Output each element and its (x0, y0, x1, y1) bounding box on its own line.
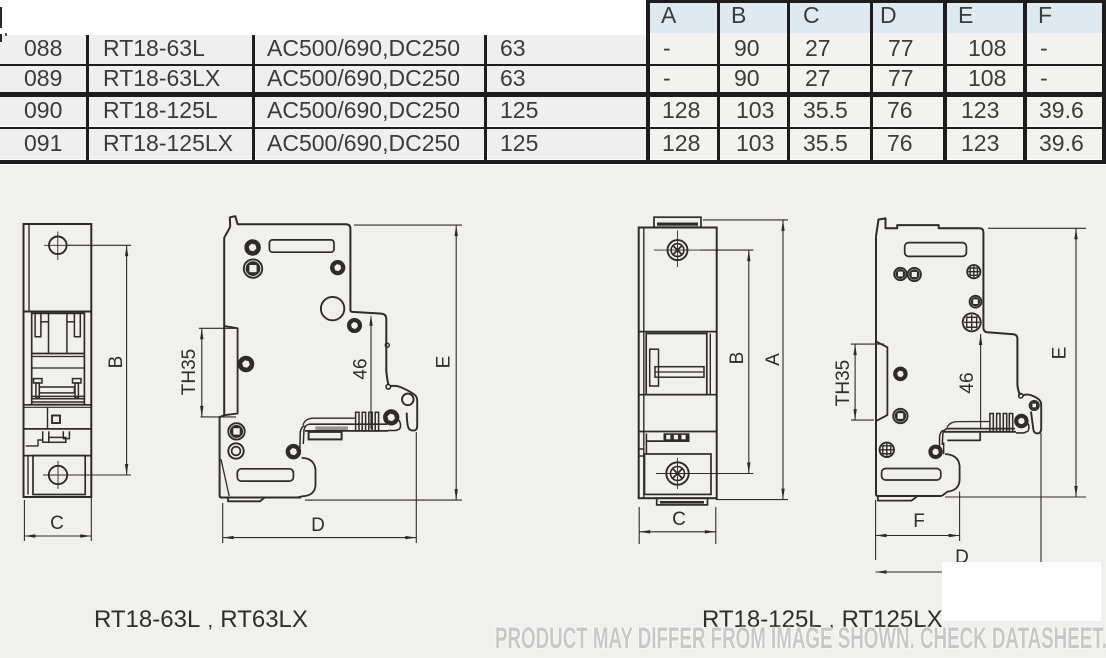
svg-text:F: F (913, 511, 925, 532)
svg-text:46: 46 (351, 358, 372, 379)
svg-text:B: B (106, 356, 127, 369)
svg-text:46: 46 (957, 372, 978, 393)
svg-text:E: E (1050, 347, 1071, 360)
svg-text:A: A (763, 353, 784, 366)
svg-text:C: C (672, 509, 686, 530)
svg-text:C: C (50, 513, 64, 534)
svg-text:B: B (727, 352, 748, 365)
svg-text:TH35: TH35 (179, 349, 200, 395)
svg-text:E: E (434, 356, 455, 369)
svg-text:TH35: TH35 (833, 360, 854, 406)
svg-text:D: D (311, 515, 325, 536)
